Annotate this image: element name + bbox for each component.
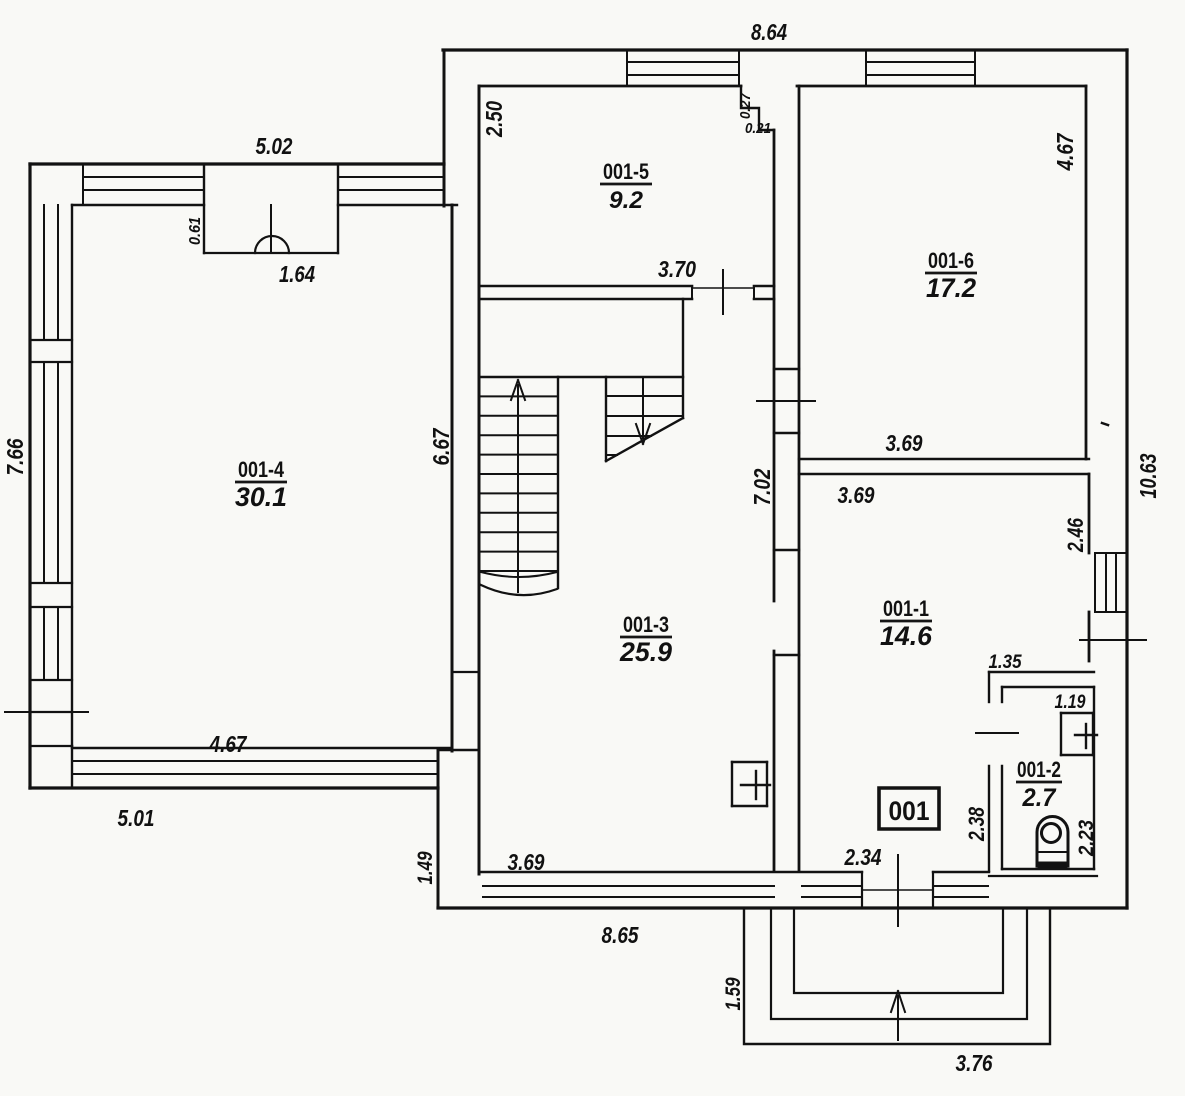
svg-text:001: 001 <box>889 796 930 826</box>
svg-text:4.67: 4.67 <box>209 731 248 757</box>
svg-text:1.19: 1.19 <box>1055 692 1086 713</box>
svg-text:001-4: 001-4 <box>238 457 285 482</box>
svg-text:2.23: 2.23 <box>1075 820 1098 857</box>
svg-text:001-3: 001-3 <box>623 612 669 637</box>
svg-text:001-1: 001-1 <box>883 596 929 621</box>
svg-text:5.02: 5.02 <box>256 133 293 159</box>
svg-text:25.9: 25.9 <box>619 637 672 667</box>
svg-text:001-5: 001-5 <box>603 159 649 184</box>
svg-text:3.70: 3.70 <box>658 256 696 282</box>
svg-text:8.64: 8.64 <box>751 19 787 45</box>
svg-text:001-2: 001-2 <box>1017 757 1061 782</box>
svg-text:2.46: 2.46 <box>1063 517 1088 552</box>
svg-text:3.69: 3.69 <box>838 482 875 508</box>
svg-text:1.64: 1.64 <box>279 261 315 287</box>
svg-text:5.01: 5.01 <box>118 805 155 831</box>
svg-text:3.69: 3.69 <box>886 430 923 456</box>
svg-text:2.38: 2.38 <box>964 806 989 841</box>
svg-text:2.34: 2.34 <box>844 844 882 870</box>
svg-text:2.50: 2.50 <box>481 101 507 138</box>
svg-text:1.49: 1.49 <box>414 851 437 884</box>
svg-text:0.61: 0.61 <box>187 217 204 245</box>
svg-text:8.65: 8.65 <box>602 922 640 948</box>
svg-text:3.69: 3.69 <box>508 849 545 875</box>
svg-text:1.59: 1.59 <box>722 977 745 1010</box>
svg-text:17.2: 17.2 <box>926 273 976 303</box>
svg-text:0.27: 0.27 <box>737 92 754 119</box>
svg-text:10.63: 10.63 <box>1135 453 1161 498</box>
svg-text:6.67: 6.67 <box>428 428 454 466</box>
svg-text:7.66: 7.66 <box>2 438 28 475</box>
svg-text:4.67: 4.67 <box>1052 133 1078 172</box>
svg-text:1.35: 1.35 <box>989 652 1022 673</box>
svg-text:14.6: 14.6 <box>880 621 933 651</box>
svg-text:001-6: 001-6 <box>928 248 974 273</box>
svg-text:2.7: 2.7 <box>1022 784 1057 812</box>
svg-text:0.21: 0.21 <box>745 120 771 137</box>
svg-text:30.1: 30.1 <box>235 482 287 512</box>
svg-text:9.2: 9.2 <box>609 187 644 214</box>
svg-text:3.76: 3.76 <box>956 1050 993 1076</box>
svg-text:7.02: 7.02 <box>749 468 775 505</box>
